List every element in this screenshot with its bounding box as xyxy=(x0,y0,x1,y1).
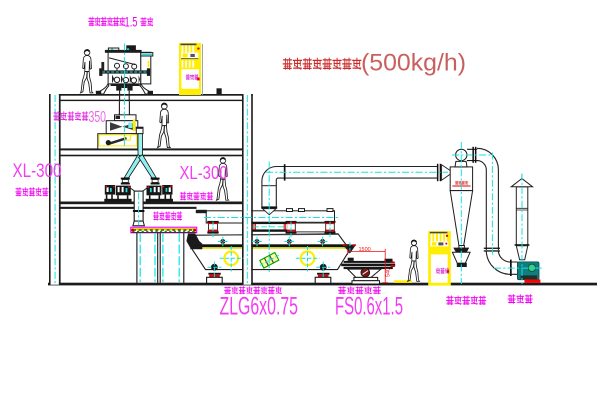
svg-text:FS0.6x1.5: FS0.6x1.5 xyxy=(335,293,403,321)
svg-text:1.5: 1.5 xyxy=(125,14,138,29)
svg-text:540: 540 xyxy=(386,268,392,277)
svg-text:(500kg/h): (500kg/h) xyxy=(361,50,466,77)
svg-text:1500: 1500 xyxy=(359,247,371,253)
svg-text:350: 350 xyxy=(89,109,107,126)
svg-text:XL-300: XL-300 xyxy=(180,163,228,183)
svg-text:ZLG6x0.75: ZLG6x0.75 xyxy=(220,293,299,321)
svg-text:XL-300: XL-300 xyxy=(13,161,62,182)
